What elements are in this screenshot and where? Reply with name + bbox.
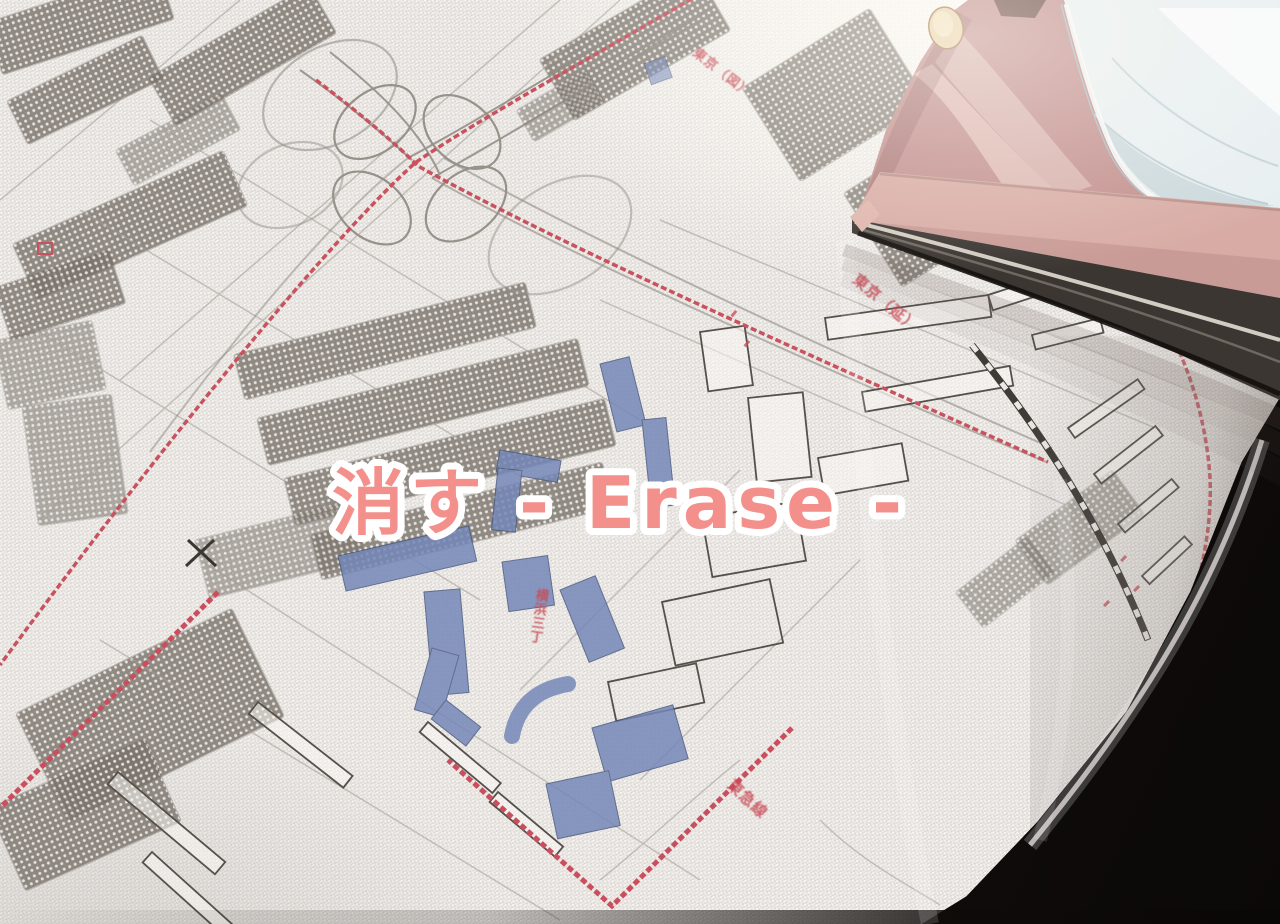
overlay-title: 消す - Erase -	[332, 461, 908, 545]
caption-layer: 消す - Erase -	[0, 0, 1280, 924]
photo-scene: 東京（図） 東京（延） 横浜三丁 東急線	[0, 0, 1280, 924]
